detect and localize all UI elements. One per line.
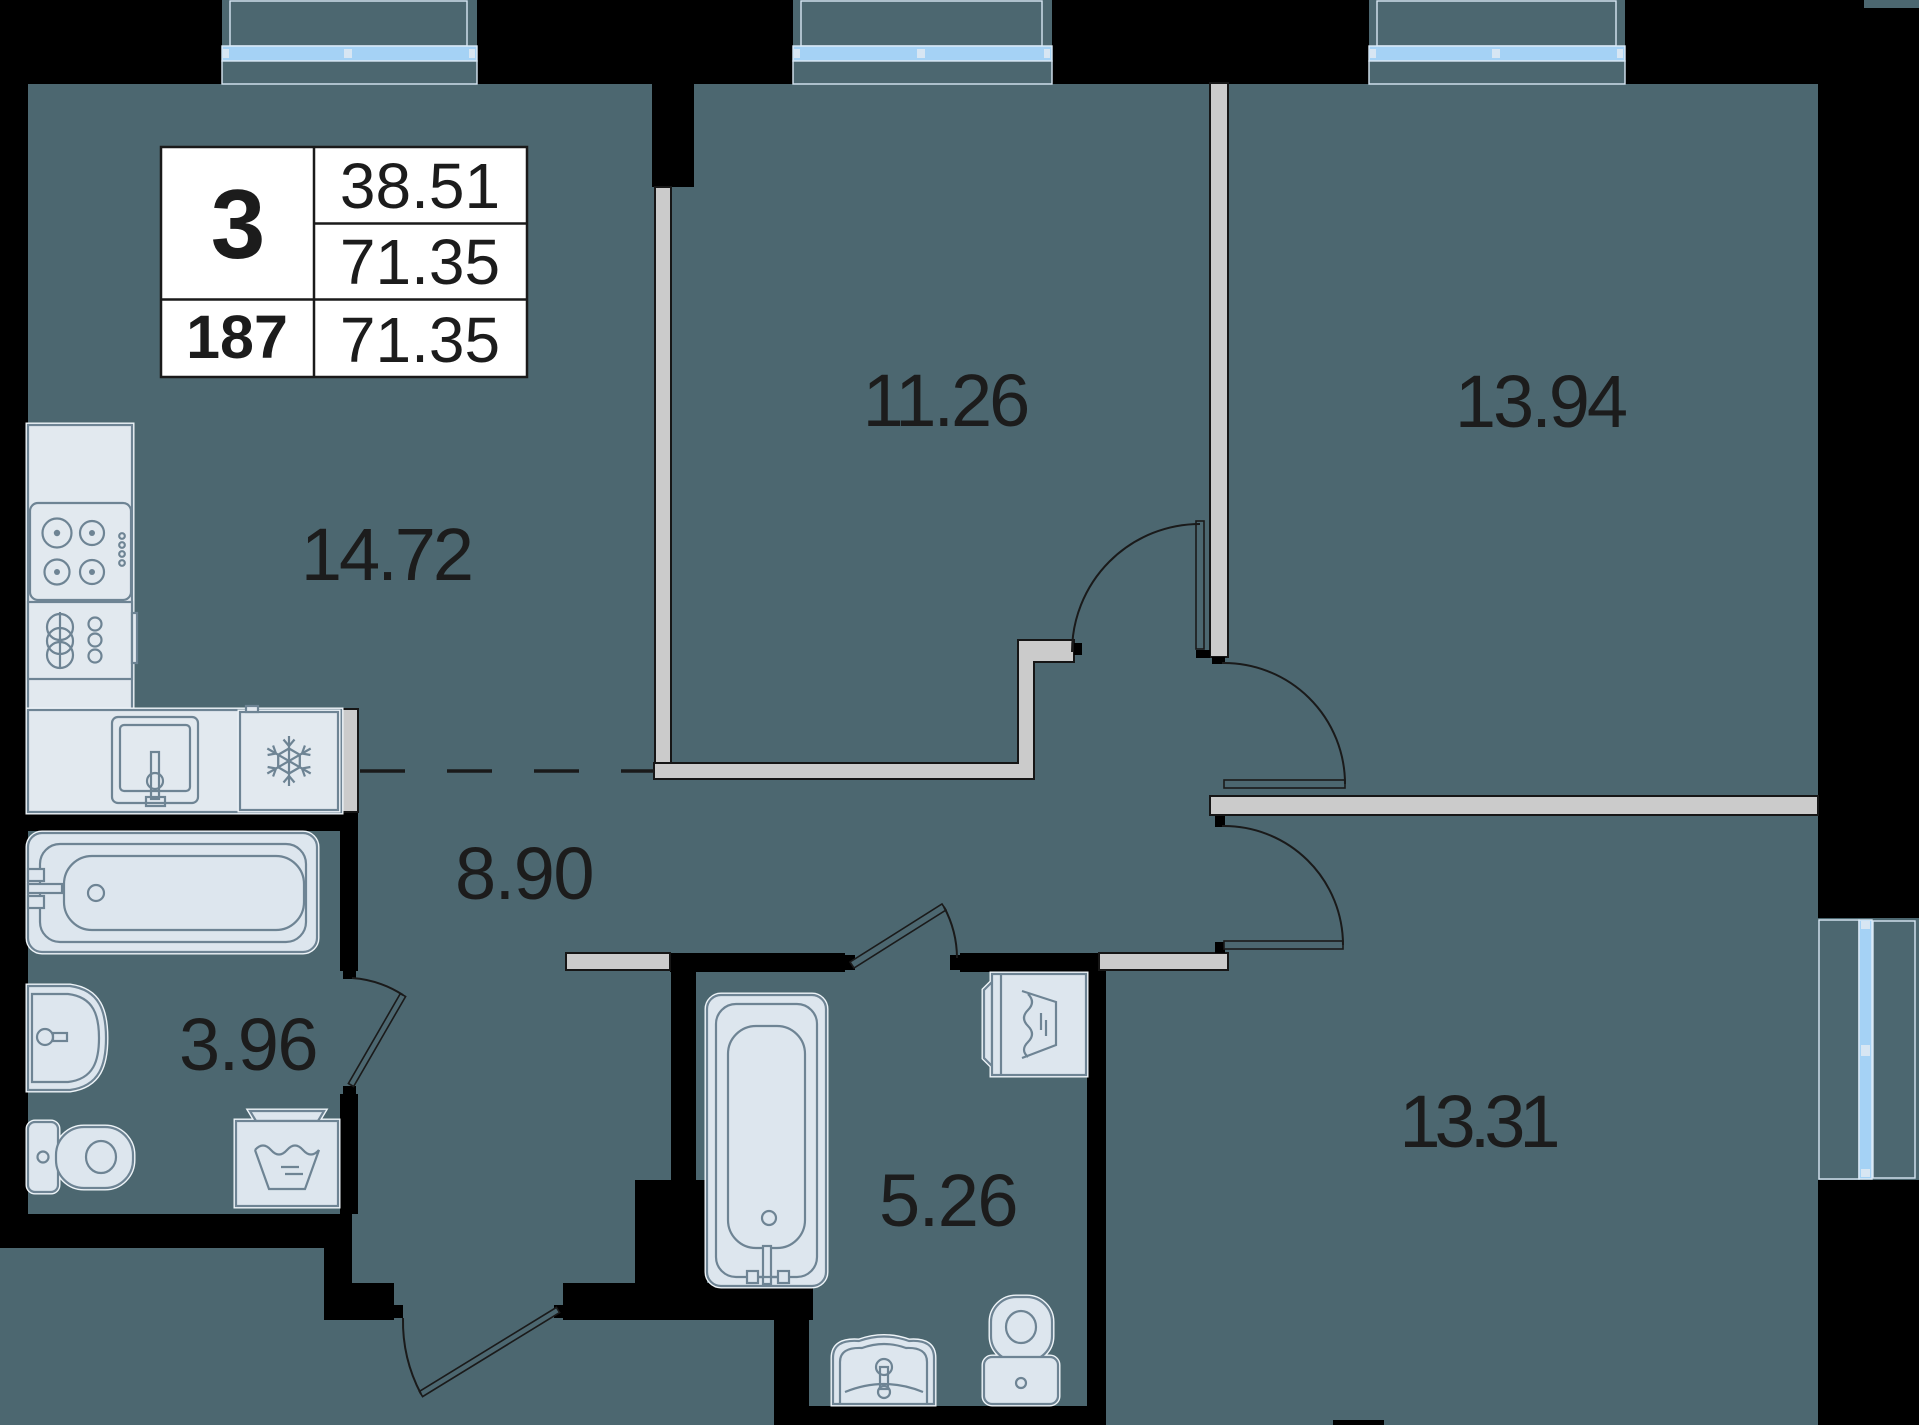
svg-text:71.35: 71.35	[340, 304, 500, 376]
svg-text:71.35: 71.35	[340, 226, 500, 298]
svg-text:14.72: 14.72	[301, 513, 471, 596]
svg-text:13.31: 13.31	[1399, 1080, 1557, 1163]
svg-text:11.26: 11.26	[863, 359, 1028, 442]
svg-text:5.26: 5.26	[879, 1159, 1017, 1242]
svg-text:13.94: 13.94	[1455, 360, 1626, 443]
svg-text:3: 3	[211, 169, 266, 279]
svg-text:187: 187	[186, 303, 288, 371]
svg-text:3.96: 3.96	[179, 1003, 317, 1086]
svg-text:8.90: 8.90	[455, 832, 593, 915]
svg-text:38.51: 38.51	[340, 150, 500, 222]
